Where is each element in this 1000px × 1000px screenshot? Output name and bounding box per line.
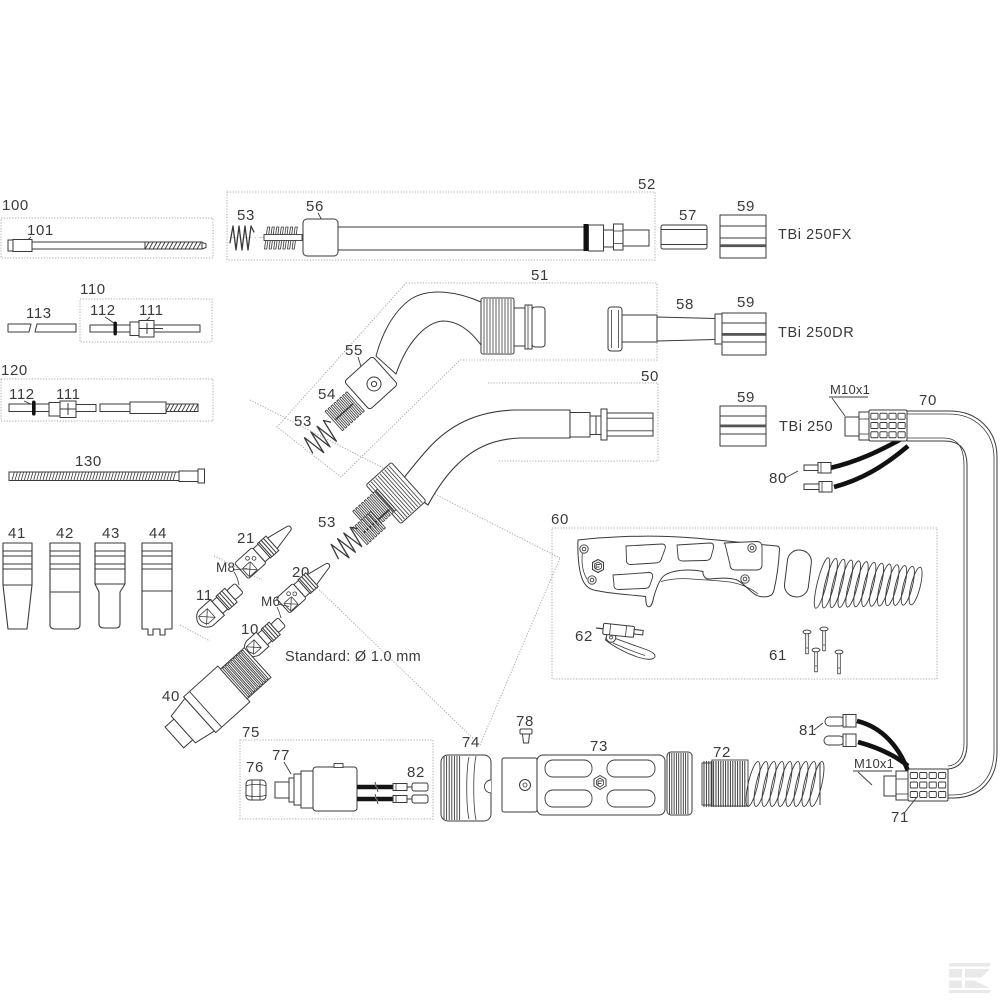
- svg-text:41: 41: [8, 525, 26, 542]
- svg-text:62: 62: [575, 628, 593, 645]
- svg-text:58: 58: [676, 296, 694, 313]
- svg-text:53: 53: [318, 514, 336, 531]
- svg-text:130: 130: [75, 453, 102, 470]
- svg-text:70: 70: [919, 392, 937, 409]
- svg-text:50: 50: [641, 368, 659, 385]
- svg-text:100: 100: [2, 197, 29, 214]
- svg-text:111: 111: [56, 386, 81, 403]
- svg-text:57: 57: [679, 207, 697, 224]
- svg-text:72: 72: [713, 744, 731, 761]
- svg-text:42: 42: [56, 525, 74, 542]
- svg-text:43: 43: [102, 525, 120, 542]
- svg-text:59: 59: [737, 389, 755, 406]
- svg-text:M6: M6: [261, 594, 280, 609]
- svg-text:55: 55: [345, 342, 363, 359]
- svg-text:112: 112: [90, 302, 116, 319]
- svg-text:112: 112: [9, 386, 35, 403]
- svg-text:80: 80: [769, 470, 787, 487]
- svg-text:61: 61: [769, 647, 787, 664]
- svg-text:TBi 250DR: TBi 250DR: [778, 325, 854, 341]
- svg-text:M10x1: M10x1: [830, 382, 870, 397]
- svg-text:40: 40: [162, 688, 180, 705]
- svg-text:44: 44: [149, 525, 167, 542]
- svg-text:TBi 250FX: TBi 250FX: [778, 227, 852, 243]
- svg-text:M10x1: M10x1: [854, 756, 894, 771]
- svg-text:82: 82: [407, 764, 425, 781]
- svg-text:101: 101: [27, 222, 54, 239]
- svg-text:77: 77: [272, 747, 290, 764]
- svg-text:Standard: Ø 1.0 mm: Standard: Ø 1.0 mm: [285, 649, 421, 665]
- svg-text:53: 53: [237, 207, 255, 224]
- svg-text:51: 51: [531, 267, 549, 284]
- svg-text:74: 74: [462, 734, 480, 751]
- svg-text:120: 120: [1, 362, 28, 379]
- svg-text:60: 60: [551, 511, 569, 528]
- svg-text:21: 21: [237, 530, 255, 547]
- svg-text:76: 76: [246, 759, 264, 776]
- svg-text:78: 78: [516, 713, 534, 730]
- svg-text:52: 52: [638, 176, 656, 193]
- svg-text:71: 71: [891, 809, 909, 826]
- svg-text:73: 73: [590, 738, 608, 755]
- svg-text:TBi 250: TBi 250: [779, 419, 833, 435]
- svg-text:111: 111: [139, 302, 164, 319]
- svg-text:110: 110: [80, 281, 106, 298]
- svg-text:59: 59: [737, 294, 755, 311]
- svg-text:M8: M8: [216, 560, 235, 575]
- svg-text:113: 113: [26, 305, 52, 322]
- svg-text:56: 56: [306, 198, 324, 215]
- svg-text:75: 75: [242, 724, 260, 741]
- svg-text:54: 54: [318, 386, 336, 403]
- svg-text:81: 81: [799, 722, 817, 739]
- svg-text:59: 59: [737, 198, 755, 215]
